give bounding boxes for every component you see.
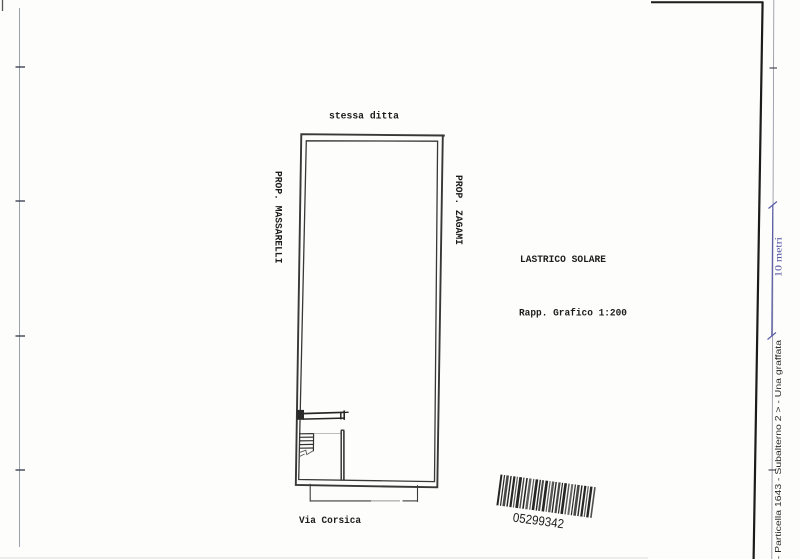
svg-text:PROP. ZAGAMI: PROP. ZAGAMI xyxy=(452,175,464,245)
svg-text:Rapp. Grafico 1:200: Rapp. Grafico 1:200 xyxy=(519,308,627,320)
svg-text:PROP. MASSARELLI: PROP. MASSARELLI xyxy=(272,171,284,264)
svg-text:LASTRICO SOLARE: LASTRICO SOLARE xyxy=(520,254,606,266)
svg-text:. - Particella 1643 - Subalte: . - Particella 1643 - Subalterno 2 > - U… xyxy=(774,339,783,559)
svg-text:10 metri: 10 metri xyxy=(775,237,785,277)
svg-text:stessa ditta: stessa ditta xyxy=(329,111,400,123)
svg-text:05299342: 05299342 xyxy=(512,510,565,532)
svg-text:Via Corsica: Via Corsica xyxy=(299,515,362,527)
